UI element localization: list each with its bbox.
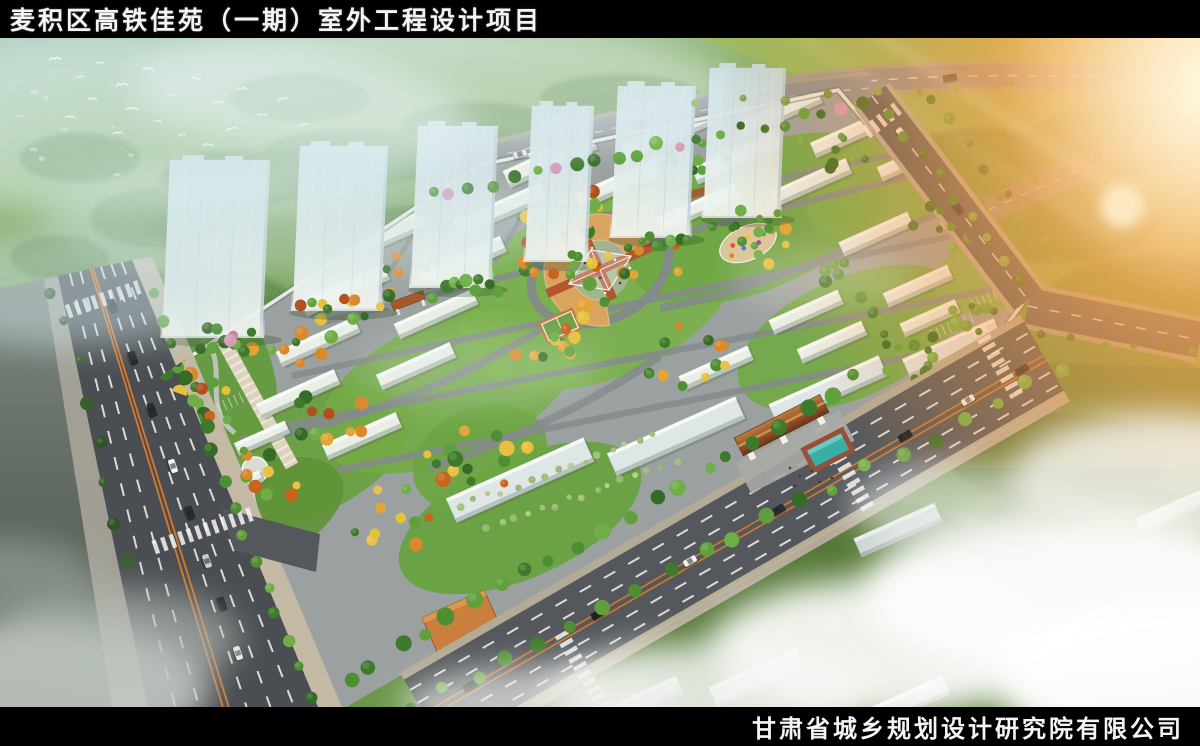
project-poster: 麦积区高铁佳苑（一期）室外工程设计项目 bbox=[0, 0, 1200, 746]
company-name: 甘肃省城乡规划设计研究院有限公司 bbox=[752, 709, 1184, 744]
page-title: 麦积区高铁佳苑（一期）室外工程设计项目 bbox=[10, 1, 542, 37]
aerial-rendering bbox=[0, 38, 1200, 707]
title-bar: 麦积区高铁佳苑（一期）室外工程设计项目 bbox=[0, 0, 1200, 38]
credit-bar: 甘肃省城乡规划设计研究院有限公司 bbox=[0, 707, 1200, 746]
